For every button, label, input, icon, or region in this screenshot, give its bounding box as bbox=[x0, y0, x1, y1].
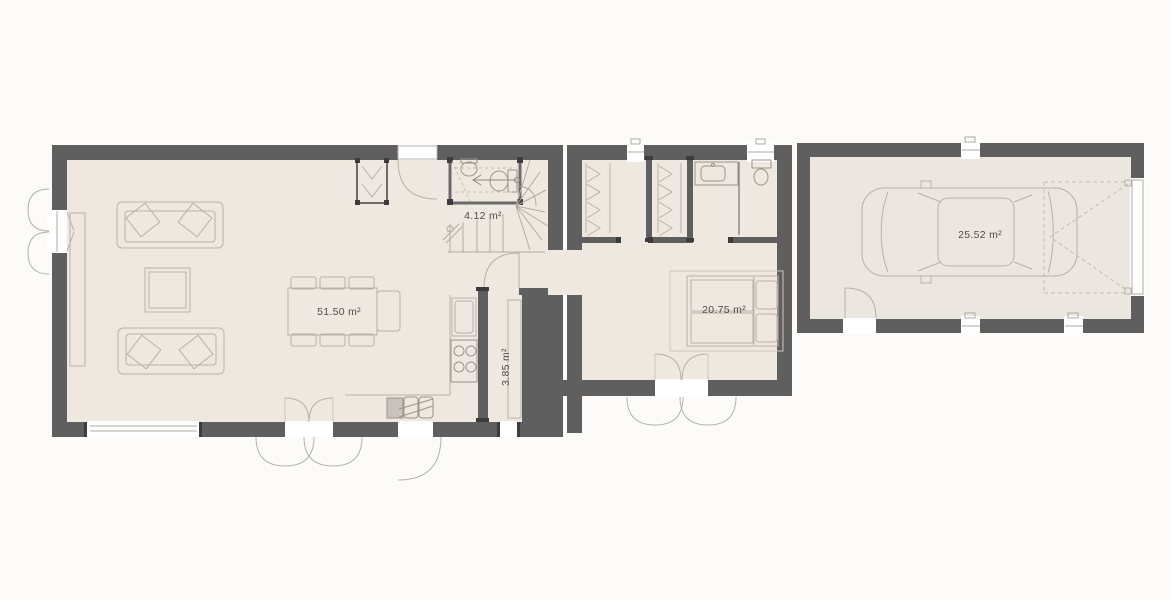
pantry-door-swing bbox=[484, 253, 519, 288]
room-label-garage: 25.52 m² bbox=[935, 229, 1025, 241]
wc-wall-caps bbox=[447, 157, 523, 205]
bath-toilet bbox=[752, 160, 771, 185]
room-label-bedroom: 20.75 m² bbox=[679, 304, 769, 316]
floor-plan-canvas: 51.50 m² 4.12 m² 3.85 m² 20.75 m² 25.52 … bbox=[0, 0, 1170, 600]
room-label-pantry: 3.85 m² bbox=[500, 337, 512, 397]
stove bbox=[451, 340, 477, 382]
kitchen-sink bbox=[399, 397, 433, 418]
door-garage-side-swing bbox=[845, 288, 876, 318]
closet2-rail bbox=[658, 163, 681, 236]
staircase bbox=[443, 160, 548, 252]
wc-toilet bbox=[490, 170, 517, 192]
furniture-layer bbox=[0, 0, 1170, 600]
french-door-living-bottom-swing bbox=[256, 398, 362, 466]
stair-direction-arrow bbox=[473, 175, 520, 185]
dishwasher bbox=[387, 398, 403, 418]
french-door-bedroom-swing bbox=[627, 354, 736, 425]
garage-main-door-leaf bbox=[1125, 180, 1143, 294]
coat-closet bbox=[355, 158, 389, 205]
coffee-table bbox=[145, 268, 190, 312]
french-door-left-swing bbox=[28, 189, 74, 274]
closet1-rail bbox=[586, 163, 610, 236]
hanger-icons-entrance bbox=[362, 166, 382, 197]
sofa-bottom bbox=[118, 328, 224, 374]
room-label-staircase: 4.12 m² bbox=[458, 210, 508, 222]
entrance-door-swing bbox=[398, 146, 437, 199]
room-label-living: 51.50 m² bbox=[294, 306, 384, 318]
sofa-top bbox=[117, 202, 223, 248]
bath-sink bbox=[695, 162, 738, 185]
door-kitchen-swing bbox=[398, 437, 441, 480]
